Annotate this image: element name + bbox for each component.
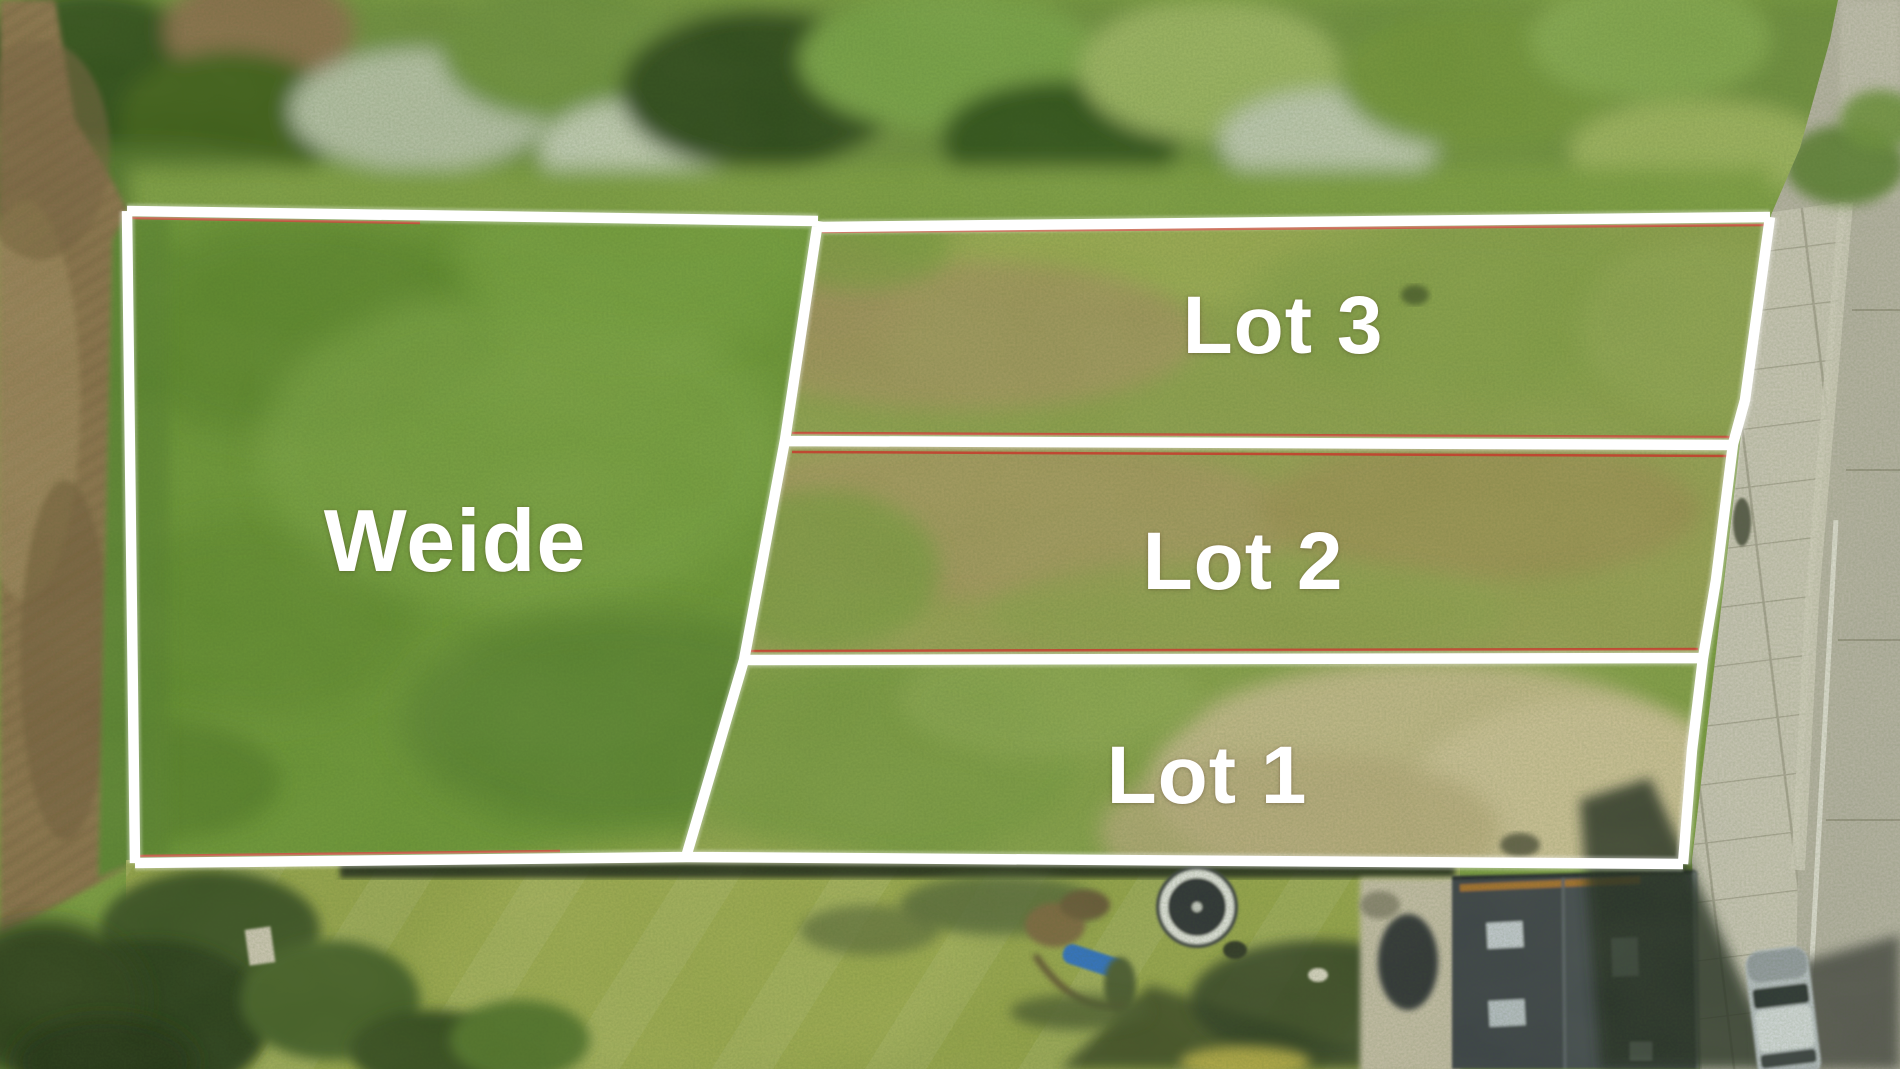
parcel-label-lot-2: Lot 2 [1143, 515, 1344, 609]
scene-svg [0, 0, 1900, 1069]
parcel-label-lot-3: Lot 3 [1183, 279, 1384, 373]
noise-coarse [0, 0, 1900, 1069]
parcel-label-lot-1: Lot 1 [1107, 729, 1308, 823]
aerial-photo: Weide Lot 3 Lot 2 Lot 1 [0, 0, 1900, 1069]
parcel-label-weide: Weide [324, 490, 587, 592]
